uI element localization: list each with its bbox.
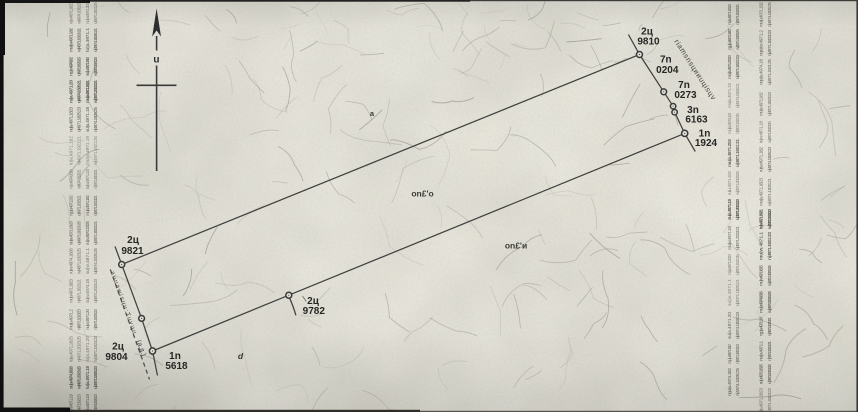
svg-text:ru|w.4871.1823: ru|w.4871.1823: [69, 2, 75, 24]
svg-text:n|4971.1825:25: n|4971.1825:25: [735, 4, 741, 25]
svg-text:9810: 9810: [637, 37, 660, 48]
svg-text:nqu|u.4974.18: nqu|u.4974.18: [759, 59, 765, 85]
svg-text:ru|u.4971.1825: ru|u.4971.1825: [759, 364, 765, 384]
svg-text:n|4971.1825:23: n|4971.1825:23: [93, 309, 99, 330]
svg-text:u: u: [153, 55, 159, 66]
svg-text:n|4871.1823:21: n|4871.1823:21: [93, 195, 99, 216]
svg-text:0204: 0204: [656, 65, 679, 76]
svg-text:9804: 9804: [105, 352, 128, 363]
svg-text:w|4971.1921:25: w|4971.1921:25: [93, 136, 99, 165]
svg-text:mu|a.4971.182: mu|a.4971.182: [85, 195, 91, 216]
svg-text:ru|a.4971.20: ru|a.4971.20: [85, 336, 91, 362]
svg-text:n|4871.1823:21: n|4871.1823:21: [77, 279, 83, 303]
svg-text:u|4971.1921:25: u|4971.1921:25: [93, 2, 99, 24]
svg-text:u|4971.2023:25: u|4971.2023:25: [77, 221, 83, 245]
svg-text:w|4971.2023:25: w|4971.2023:25: [77, 366, 83, 390]
svg-text:n|4971.1823:21: n|4971.1823:21: [93, 169, 99, 189]
svg-text:nu|a.4871.1823: nu|a.4871.1823: [727, 4, 733, 25]
svg-text:ngu|a.4971.18: ngu|a.4971.18: [759, 317, 765, 336]
svg-text:n|4971.1823:21: n|4971.1823:21: [767, 341, 773, 361]
svg-text:ngu|u.4974.182: ngu|u.4974.182: [727, 368, 733, 396]
svg-text:ru|a.4971.20: ru|a.4971.20: [69, 80, 75, 103]
svg-text:on£'и: on£'и: [505, 241, 527, 251]
svg-text:n|4971.1921:23: n|4971.1921:23: [767, 232, 773, 260]
svg-text:n|4871.1823:23: n|4871.1823:23: [767, 388, 773, 412]
svg-text:mu|a.4974.18: mu|a.4974.18: [727, 113, 733, 134]
svg-text:ru|u.4971.192: ru|u.4971.192: [727, 171, 733, 195]
svg-text:nu|w.4971.202: nu|w.4971.202: [85, 2, 91, 24]
svg-text:u|4971.1825:25: u|4971.1825:25: [77, 57, 83, 76]
svg-text:tu|a.4971.18: tu|a.4971.18: [85, 366, 91, 389]
svg-text:su|a.4871.18: su|a.4871.18: [727, 199, 733, 220]
svg-text:su|a.4871.1823: su|a.4871.1823: [69, 221, 75, 245]
svg-text:tu|w.4871.18: tu|w.4871.18: [759, 121, 765, 143]
svg-text:w|4871.1823:23: w|4871.1823:23: [93, 336, 99, 362]
svg-text:w|4971.1921:23: w|4971.1921:23: [77, 394, 83, 412]
svg-text:nu|w.4971.20: nu|w.4971.20: [85, 309, 91, 330]
svg-text:u|4971.1825:23: u|4971.1825:23: [93, 366, 99, 389]
svg-text:u|4971.2023:21: u|4971.2023:21: [735, 226, 741, 250]
svg-text:su|u.4971.18: su|u.4971.18: [85, 107, 91, 132]
svg-text:mu|a.4971.1921: mu|a.4971.1921: [85, 80, 91, 103]
svg-text:w|4971.1921:21: w|4971.1921:21: [77, 136, 83, 165]
svg-text:n|4971.2023:25: n|4971.2023:25: [77, 336, 83, 362]
svg-text:mu|u.4971.19: mu|u.4971.19: [727, 83, 733, 108]
svg-text:nqu|w.4974.182: nqu|w.4974.182: [69, 57, 75, 76]
svg-text:mu|w.4971.1825: mu|w.4971.1825: [759, 265, 765, 286]
svg-text:su|u.4971.192: su|u.4971.192: [85, 57, 91, 76]
svg-text:u|4971.1825:21: u|4971.1825:21: [735, 279, 741, 306]
svg-text:6163: 6163: [685, 115, 708, 126]
svg-text:su|a.4971.20: su|a.4971.20: [727, 312, 733, 339]
svg-text:nqu|u.4971.182: nqu|u.4971.182: [727, 344, 733, 364]
svg-text:su|w.4974.18: su|w.4974.18: [85, 279, 91, 303]
svg-text:ru|w.4971.182: ru|w.4971.182: [759, 147, 765, 172]
svg-text:mu|u.4971.1823: mu|u.4971.1823: [69, 279, 75, 303]
svg-text:mu|w.4971.182: mu|w.4971.182: [69, 28, 75, 52]
svg-text:n|4974.1826:25: n|4974.1826:25: [767, 2, 773, 27]
svg-text:u|4871.1823:21: u|4871.1823:21: [93, 221, 99, 245]
svg-text:su|w.4871.1: su|w.4871.1: [85, 248, 91, 274]
svg-text:d: d: [238, 351, 244, 361]
svg-text:7n: 7n: [660, 55, 672, 66]
svg-text:ru|w.4974.1826: ru|w.4974.1826: [69, 248, 75, 274]
svg-text:u|4971.1823:23: u|4971.1823:23: [735, 55, 741, 79]
svg-text:mu|a.4971.202: mu|a.4971.202: [727, 139, 733, 167]
svg-text:w|4971.1823:25: w|4971.1823:25: [767, 121, 773, 143]
svg-text:mu|u.4971.192: mu|u.4971.192: [759, 2, 765, 27]
svg-text:su|w.4971.1: su|w.4971.1: [727, 279, 733, 306]
svg-text:ngu|u.4971.202: ngu|u.4971.202: [69, 195, 75, 216]
svg-text:u|4971.2023:23: u|4971.2023:23: [767, 364, 773, 384]
svg-text:5618: 5618: [165, 361, 188, 372]
svg-text:su|u.4974.1826: su|u.4974.1826: [69, 366, 75, 389]
svg-text:mu|a.4971.1823: mu|a.4971.1823: [759, 178, 765, 206]
svg-text:on£'o: on£'o: [411, 189, 433, 199]
svg-text:ru|w.4871.18: ru|w.4871.18: [85, 394, 91, 412]
svg-text:nqu|w.4971.2: nqu|w.4971.2: [759, 30, 765, 56]
svg-text:nu|a.4971.2023: nu|a.4971.2023: [727, 254, 733, 275]
svg-text:1924: 1924: [695, 138, 718, 149]
svg-text:9821: 9821: [121, 246, 144, 257]
svg-text:w|4971.2023:25: w|4971.2023:25: [735, 171, 741, 195]
svg-text:n|4871.1823:23: n|4871.1823:23: [77, 309, 83, 330]
svg-text:u|4971.1921:25: u|4971.1921:25: [735, 254, 741, 275]
svg-text:tu|a.4971.1825: tu|a.4971.1825: [69, 336, 75, 362]
svg-text:tu|u.4971.1823: tu|u.4971.1823: [759, 388, 765, 412]
svg-text:mu|a.4971.2023: mu|a.4971.2023: [727, 55, 733, 79]
svg-text:tu|a.4971.1921: tu|a.4971.1921: [759, 209, 765, 229]
svg-text:w|4971.1921:23: w|4971.1921:23: [93, 57, 99, 77]
svg-text:u|4971.1921:21: u|4971.1921:21: [735, 139, 741, 167]
svg-text:w|4871.1823:25: w|4871.1823:25: [77, 248, 83, 274]
svg-text:nu|a.4971.1823: nu|a.4971.1823: [69, 107, 75, 132]
svg-text:u|4974.1826:21: u|4974.1826:21: [93, 28, 99, 52]
svg-text:9782: 9782: [303, 306, 326, 317]
svg-text:w|4971.2023:21: w|4971.2023:21: [93, 80, 99, 104]
svg-text:w|4974.1826:25: w|4974.1826:25: [767, 291, 773, 314]
svg-text:w|4971.1825:21: w|4971.1825:21: [767, 317, 773, 336]
svg-text:u|4971.1921:25: u|4971.1921:25: [767, 59, 773, 85]
svg-text:u|4971.1823:23: u|4971.1823:23: [767, 92, 773, 116]
svg-text:w|4971.1825:25: w|4971.1825:25: [767, 265, 773, 287]
svg-text:n|4871.1823:23: n|4871.1823:23: [735, 344, 741, 364]
svg-text:n|4971.1921:25: n|4971.1921:25: [735, 113, 741, 134]
svg-text:n|4971.1823:23: n|4971.1823:23: [767, 30, 773, 56]
svg-text:mu|a.4971.182: mu|a.4971.182: [759, 92, 765, 116]
svg-text:ngu|w.4971.182: ngu|w.4971.182: [727, 29, 733, 50]
svg-text:mu|u.4974.1826: mu|u.4974.1826: [759, 291, 765, 313]
svg-text:w|4971.2023:23: w|4971.2023:23: [767, 209, 773, 230]
svg-text:ru|a.4971.1825: ru|a.4971.1825: [85, 221, 91, 245]
svg-text:nu|a.4971.1: nu|a.4971.1: [759, 341, 765, 361]
svg-text:w|4971.1825:25: w|4971.1825:25: [735, 29, 741, 50]
svg-text:mu|w.4871.1: mu|w.4871.1: [759, 232, 765, 260]
svg-text:n|4974.1826:25: n|4974.1826:25: [93, 107, 99, 132]
svg-text:u|4971.1825:23: u|4971.1825:23: [77, 107, 83, 132]
svg-text:mu|w.4971.18: mu|w.4971.18: [727, 226, 733, 250]
svg-text:w|4974.1826:21: w|4974.1826:21: [77, 2, 83, 24]
svg-text:u|4974.1826:23: u|4974.1826:23: [735, 312, 741, 339]
svg-text:u|4971.2023:23: u|4971.2023:23: [93, 279, 99, 303]
svg-text:tu|a.4971.1: tu|a.4971.1: [85, 28, 91, 52]
svg-text:w|4974.1826:23: w|4974.1826:23: [93, 394, 99, 412]
svg-text:tu|a.4971.182: tu|a.4971.182: [69, 136, 75, 165]
svg-text:2ц: 2ц: [112, 342, 125, 353]
svg-text:u|4974.1826:21: u|4974.1826:21: [77, 80, 83, 103]
svg-text:u|4974.1826:23: u|4974.1826:23: [767, 147, 773, 172]
svg-text:w|4971.1825:21: w|4971.1825:21: [767, 178, 773, 206]
svg-text:n|4974.1826:25: n|4974.1826:25: [735, 368, 741, 396]
svg-text:tu|w.4971.18: tu|w.4971.18: [85, 169, 91, 189]
svg-text:nu|w.4974.1826: nu|w.4974.1826: [69, 169, 75, 189]
svg-text:w|4974.1826:21: w|4974.1826:21: [77, 169, 83, 189]
svg-text:u|4974.1826:21: u|4974.1826:21: [735, 83, 741, 108]
svg-text:u|4971.1825:21: u|4971.1825:21: [77, 195, 83, 216]
svg-text:u|4974.1826:25: u|4974.1826:25: [93, 248, 99, 274]
svg-text:w|4871.1823:21: w|4871.1823:21: [77, 28, 83, 53]
svg-text:0273: 0273: [674, 90, 697, 101]
svg-text:2ц: 2ц: [127, 235, 140, 246]
svg-text:mu|u.4971.2: mu|u.4971.2: [69, 309, 75, 330]
svg-text:u|4971.2023:23: u|4971.2023:23: [735, 199, 741, 220]
svg-text:mu|w.4971.19: mu|w.4971.19: [85, 136, 91, 165]
